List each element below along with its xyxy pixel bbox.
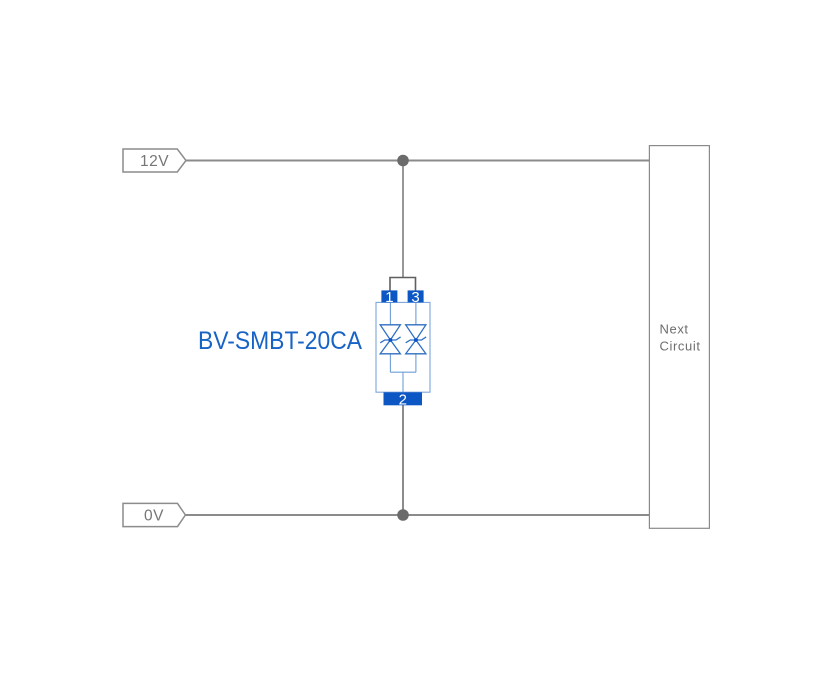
svg-text:Circuit: Circuit — [660, 339, 701, 354]
svg-text:12V: 12V — [140, 153, 169, 170]
svg-text:0V: 0V — [144, 508, 164, 525]
svg-text:Next: Next — [660, 322, 689, 337]
svg-text:BV-SMBT-20CA: BV-SMBT-20CA — [198, 327, 362, 355]
svg-text:2: 2 — [399, 391, 407, 408]
svg-text:1: 1 — [385, 289, 393, 306]
